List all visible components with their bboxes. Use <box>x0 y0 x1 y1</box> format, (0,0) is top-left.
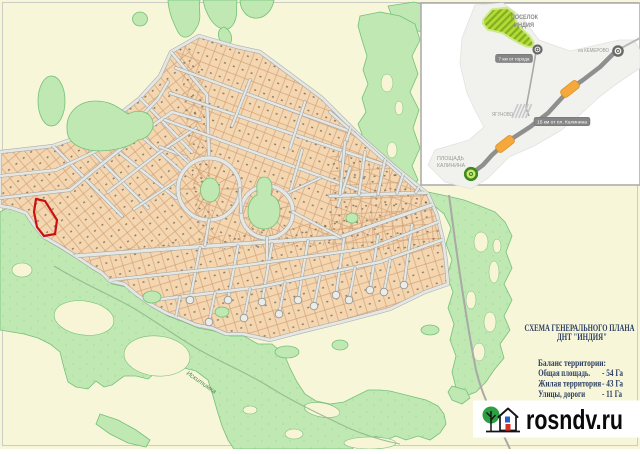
svg-text:Жилая территория: Жилая территория <box>538 378 601 388</box>
svg-text:ЯГУНОВО: ЯГУНОВО <box>492 112 514 118</box>
svg-text:- 43 Га: - 43 Га <box>602 378 623 388</box>
svg-text:Баланс территории:: Баланс территории: <box>538 358 606 368</box>
svg-text:КАЛИНИНА: КАЛИНИНА <box>437 163 465 169</box>
svg-text:ПОСЕЛОК: ПОСЕЛОК <box>511 14 538 21</box>
svg-text:Улицы, дороги: Улицы, дороги <box>538 389 585 399</box>
svg-text:rosndv.ru: rosndv.ru <box>526 404 623 435</box>
svg-text:7 км от города: 7 км от города <box>499 57 530 63</box>
svg-text:на КЕМЕРОВО: на КЕМЕРОВО <box>578 48 609 54</box>
svg-text:- 11 Га: - 11 Га <box>602 389 622 399</box>
svg-text:ИНДИЯ: ИНДИЯ <box>514 22 534 29</box>
svg-text:Общая площадь.: Общая площадь. <box>538 368 590 378</box>
svg-text:15 км от пл. Калинина: 15 км от пл. Калинина <box>537 120 587 126</box>
svg-text:- 54 Га: - 54 Га <box>602 368 623 378</box>
svg-text:ПЛОЩАДЬ: ПЛОЩАДЬ <box>437 156 464 162</box>
svg-text:ДНТ "ИНДИЯ": ДНТ "ИНДИЯ" <box>557 333 607 343</box>
